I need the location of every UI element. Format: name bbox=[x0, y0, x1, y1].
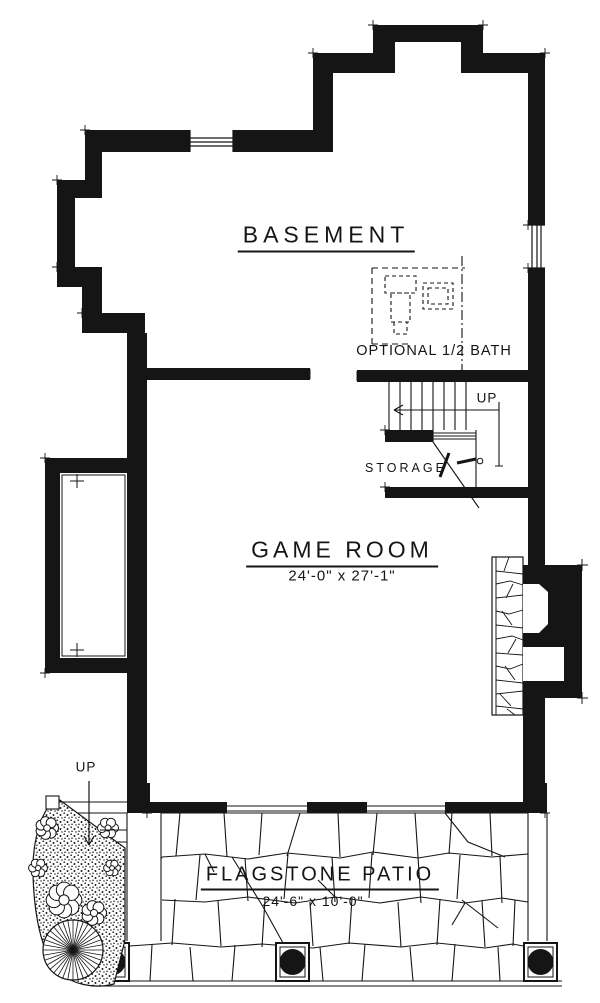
column bbox=[276, 943, 309, 981]
optional-bath-label: OPTIONAL 1/2 BATH bbox=[356, 343, 512, 359]
game-room-label: GAME ROOM bbox=[246, 537, 438, 568]
exterior-walls bbox=[45, 25, 547, 813]
patio-columns bbox=[96, 943, 557, 981]
patio-label: FLAGSTONE PATIO bbox=[201, 864, 439, 891]
floor-plan: BASEMENT OPTIONAL 1/2 BATH UP STORAGE GA… bbox=[0, 0, 600, 1003]
sunburst-paving bbox=[43, 920, 103, 980]
plan-drawing bbox=[0, 0, 600, 1003]
basement-label: BASEMENT bbox=[238, 222, 415, 253]
storage-label: STORAGE bbox=[365, 461, 447, 475]
patio-dims: 24'-6" x 10'-0" bbox=[262, 893, 363, 909]
fireplace bbox=[492, 557, 588, 715]
window-top bbox=[190, 130, 233, 152]
patio-up-label: UP bbox=[76, 760, 97, 775]
window-well bbox=[62, 474, 125, 657]
game-room-dims: 24'-0" x 27'-1" bbox=[288, 568, 395, 585]
window-right bbox=[528, 225, 545, 268]
column bbox=[524, 943, 557, 981]
garden-bed bbox=[29, 798, 125, 986]
stair-up-label: UP bbox=[477, 391, 498, 406]
